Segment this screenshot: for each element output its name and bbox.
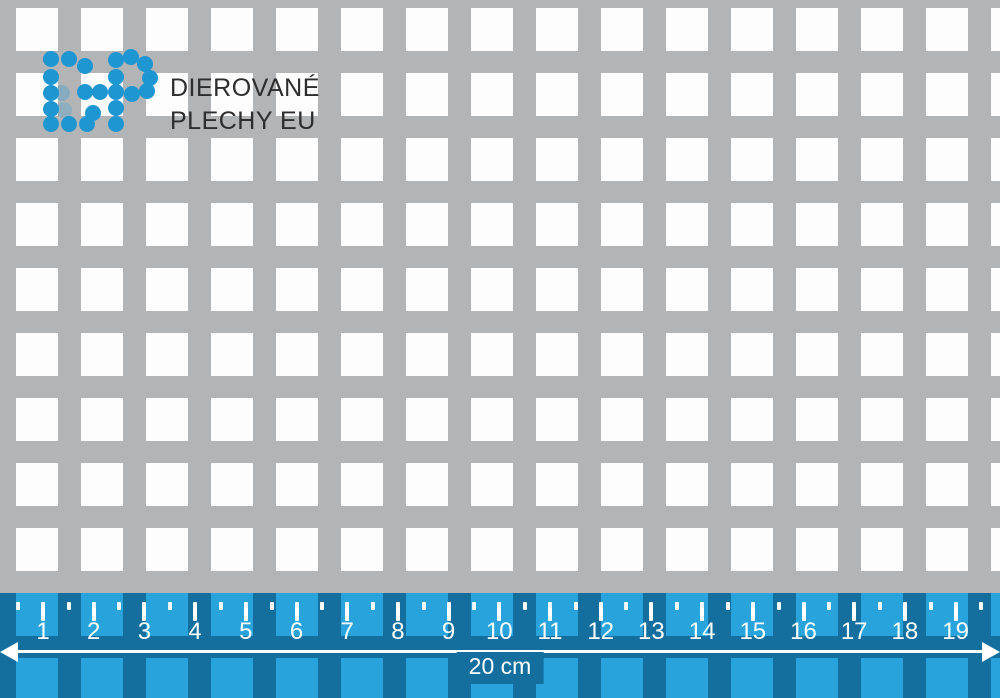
ruler-minor-tick bbox=[270, 602, 274, 610]
ruler-minor-tick bbox=[472, 602, 476, 610]
ruler-number: 10 bbox=[479, 618, 519, 646]
brand-line1: DIEROVANÉ bbox=[170, 72, 320, 105]
ruler-minor-tick bbox=[168, 602, 172, 610]
ruler-number: 17 bbox=[834, 618, 874, 646]
ruler-number: 16 bbox=[784, 618, 824, 646]
brand-line2: PLECHY EU bbox=[170, 105, 320, 138]
arrow-left-icon bbox=[0, 642, 18, 662]
ruler-number: 19 bbox=[936, 618, 976, 646]
ruler-number: 2 bbox=[74, 618, 114, 646]
ruler-minor-tick bbox=[219, 602, 223, 610]
ruler: 20 cm 12345678910111213141516171819 bbox=[0, 593, 1000, 698]
ruler-number: 5 bbox=[226, 618, 266, 646]
dimension-label: 20 cm bbox=[457, 652, 544, 684]
dp-logo-icon bbox=[0, 0, 170, 150]
perforated-sheet-photo: DIEROVANÉ PLECHY EU 20 cm 12345678910111… bbox=[0, 0, 1000, 698]
ruler-minor-tick bbox=[878, 602, 882, 610]
ruler-number: 11 bbox=[530, 618, 570, 646]
ruler-minor-tick bbox=[726, 602, 730, 610]
arrow-right-icon bbox=[982, 642, 1000, 662]
ruler-minor-tick bbox=[422, 602, 426, 610]
ruler-number: 8 bbox=[378, 618, 418, 646]
ruler-minor-tick bbox=[117, 602, 121, 610]
ruler-minor-tick bbox=[16, 602, 20, 610]
ruler-number: 18 bbox=[885, 618, 925, 646]
ruler-minor-tick bbox=[320, 602, 324, 610]
ruler-minor-tick bbox=[929, 602, 933, 610]
ruler-minor-tick bbox=[67, 602, 71, 610]
ruler-number: 4 bbox=[175, 618, 215, 646]
ruler-minor-tick bbox=[777, 602, 781, 610]
ruler-number: 14 bbox=[682, 618, 722, 646]
brand-wordmark: DIEROVANÉ PLECHY EU bbox=[170, 72, 320, 138]
ruler-minor-tick bbox=[523, 602, 527, 610]
ruler-number: 13 bbox=[631, 618, 671, 646]
ruler-minor-tick bbox=[574, 602, 578, 610]
ruler-number: 6 bbox=[277, 618, 317, 646]
ruler-number: 15 bbox=[733, 618, 773, 646]
ruler-minor-tick bbox=[675, 602, 679, 610]
ruler-number: 3 bbox=[124, 618, 164, 646]
ruler-minor-tick bbox=[624, 602, 628, 610]
ruler-number: 1 bbox=[23, 618, 63, 646]
ruler-minor-tick bbox=[371, 602, 375, 610]
ruler-minor-tick bbox=[979, 602, 983, 610]
ruler-number: 9 bbox=[429, 618, 469, 646]
ruler-minor-tick bbox=[827, 602, 831, 610]
ruler-number: 7 bbox=[327, 618, 367, 646]
ruler-number: 12 bbox=[581, 618, 621, 646]
